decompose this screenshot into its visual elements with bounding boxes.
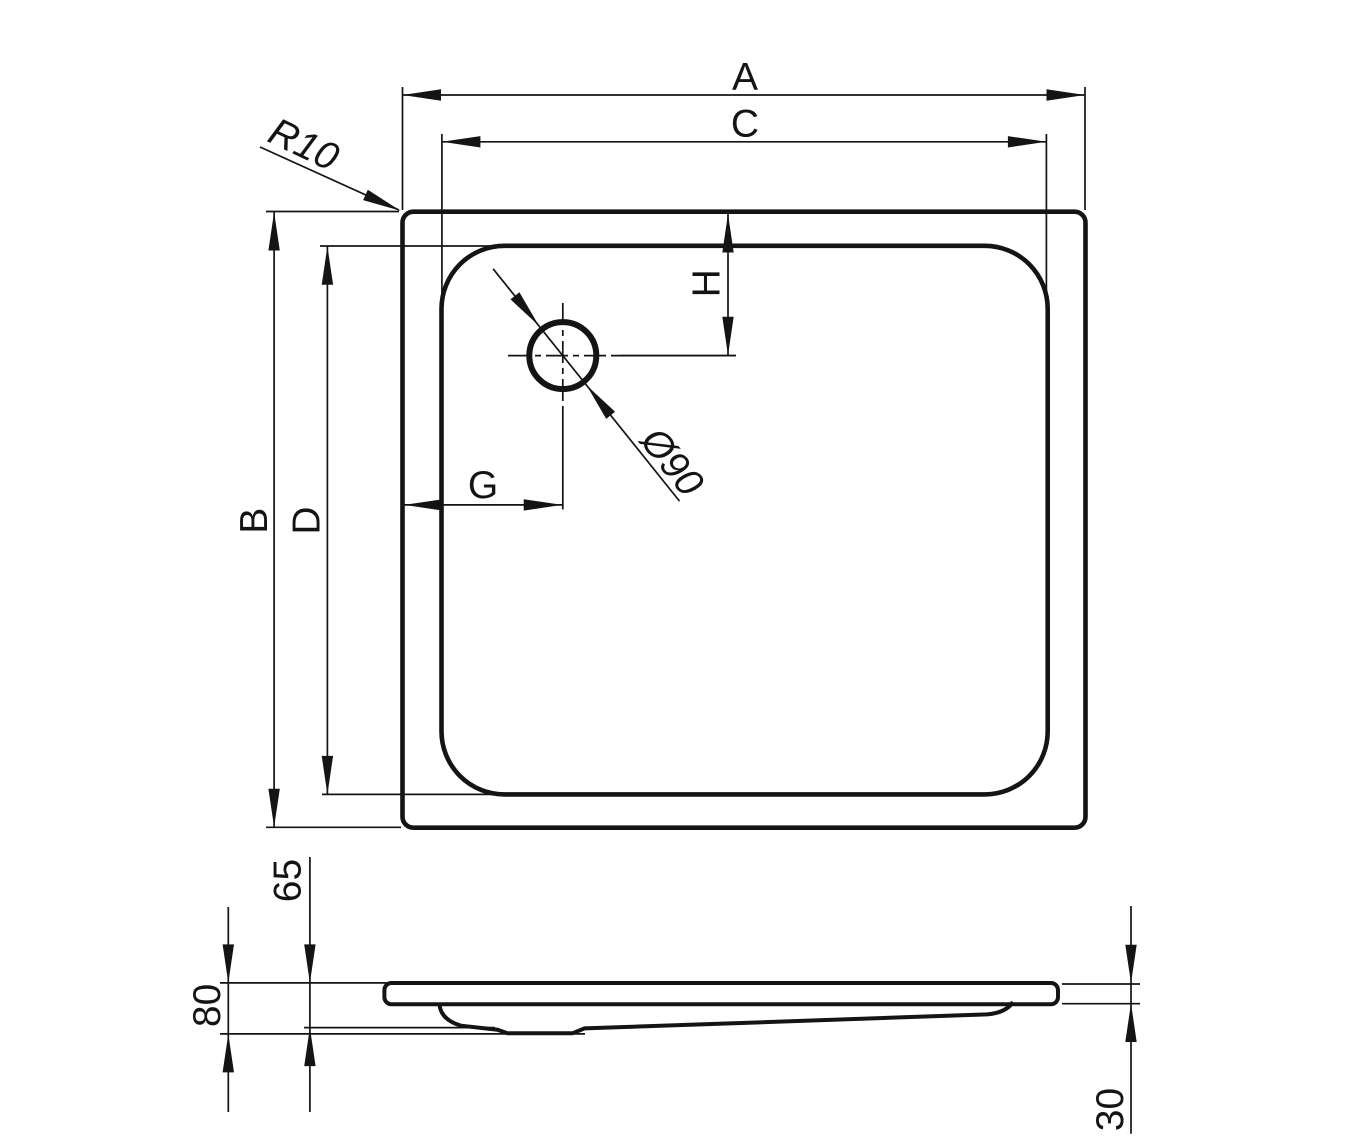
svg-text:G: G <box>468 464 498 507</box>
svg-text:30: 30 <box>1089 1088 1132 1131</box>
svg-text:A: A <box>732 56 758 99</box>
svg-text:80: 80 <box>186 984 229 1027</box>
svg-text:C: C <box>731 103 759 146</box>
svg-text:D: D <box>286 507 329 535</box>
svg-text:B: B <box>233 508 276 534</box>
svg-text:H: H <box>686 269 729 297</box>
svg-text:65: 65 <box>267 859 310 902</box>
